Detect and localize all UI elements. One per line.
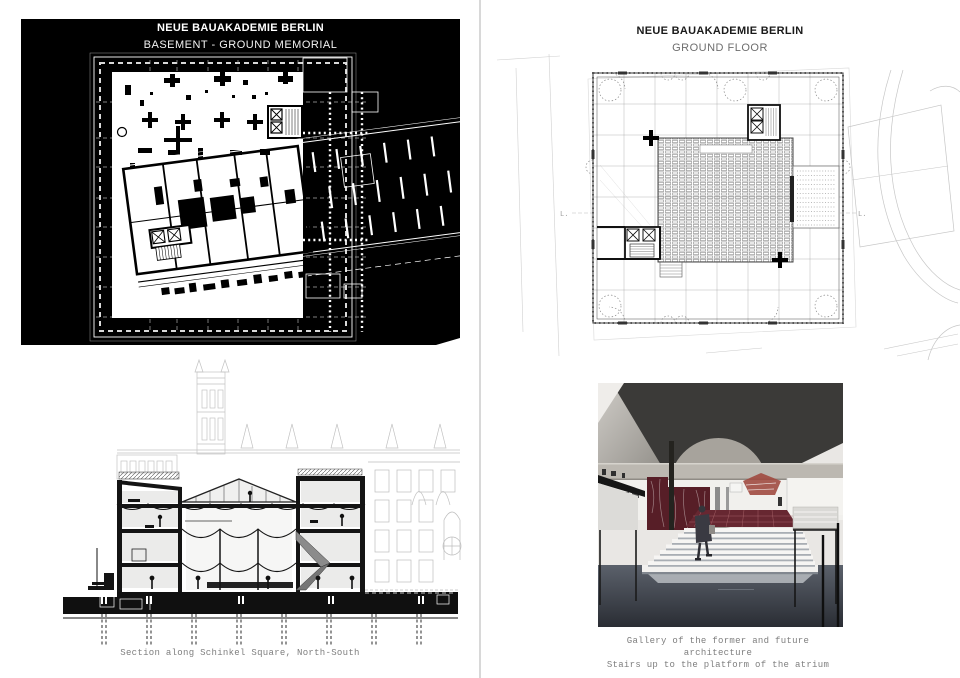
core-west — [597, 227, 660, 259]
pillar — [669, 441, 674, 530]
stage-area — [790, 166, 839, 228]
core-northeast — [748, 105, 780, 140]
courtyard-paving — [658, 138, 793, 262]
page-divider — [479, 0, 481, 678]
ground-floor-panel-subtitle: GROUND FLOOR — [490, 42, 950, 55]
underground — [63, 592, 458, 646]
floor-mark — [718, 589, 754, 590]
church-elevation — [117, 360, 460, 505]
section-drawing — [63, 360, 461, 646]
render-caption-line1: Gallery of the former and future archite… — [590, 635, 846, 659]
foundation-piles — [102, 614, 421, 646]
floor-reflection — [648, 574, 813, 583]
render-caption: Gallery of the former and future archite… — [590, 635, 846, 671]
stair-base-shadow — [642, 572, 818, 574]
section-label-left: L. — [560, 211, 568, 219]
basement-panel-title: NEUE BAUAKADEMIE BERLIN — [21, 22, 460, 35]
right-facade — [365, 462, 461, 590]
stair-south-treads — [660, 265, 682, 274]
render-caption-line2: Stairs up to the platform of the atrium — [590, 659, 846, 671]
basement-plan-drawing — [21, 19, 482, 345]
statue-figure — [778, 497, 782, 506]
column-marker-circle — [118, 128, 127, 137]
section-caption: Section along Schinkel Square, North-Sou… — [30, 647, 450, 659]
courtyard-opening — [700, 145, 752, 153]
roof-truss — [182, 479, 296, 502]
basement-panel-subtitle: BASEMENT - GROUND MEMORIAL — [21, 39, 460, 52]
render-artwork — [598, 383, 843, 627]
ground-floor-drawing: L. L. — [497, 54, 960, 360]
elevator-core-top — [268, 106, 302, 138]
atrium-render-image — [598, 383, 843, 627]
ground-floor-panel-title: NEUE BAUAKADEMIE BERLIN — [490, 25, 950, 38]
stair-south — [660, 262, 682, 277]
beam-highlight — [598, 463, 843, 465]
section-label-right: L. — [858, 211, 866, 219]
concrete-beam — [598, 463, 843, 480]
